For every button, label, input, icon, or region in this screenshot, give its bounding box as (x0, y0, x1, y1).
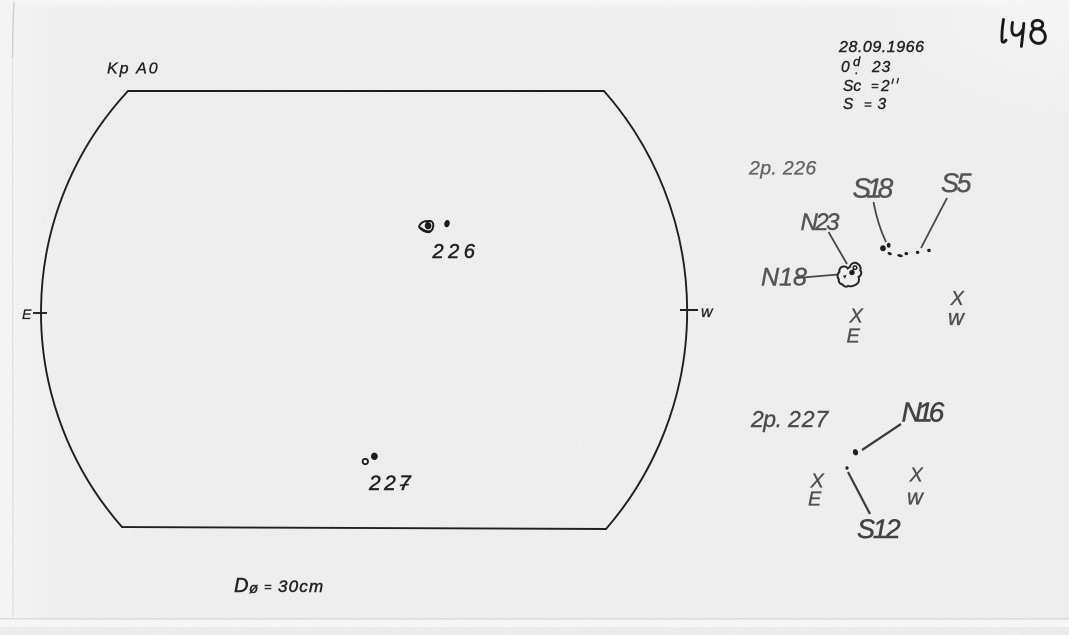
svg-text:w: w (948, 305, 966, 330)
svg-text:S5: S5 (941, 168, 973, 198)
svg-text:=: = (871, 78, 879, 93)
svg-text:E: E (808, 489, 822, 511)
svg-text:X: X (849, 306, 864, 328)
svg-text:w: w (907, 485, 925, 510)
svg-text:23: 23 (871, 59, 891, 76)
svg-text:30cm: 30cm (278, 577, 324, 596)
svg-text:S: S (843, 96, 854, 113)
svg-text:S18: S18 (853, 173, 894, 204)
svg-text:3: 3 (878, 96, 887, 113)
svg-text:.: . (855, 62, 859, 77)
svg-text:Kp A0: Kp A0 (107, 61, 160, 78)
svg-text:N23: N23 (801, 209, 841, 236)
svg-text:E: E (22, 306, 32, 322)
svg-text:2: 2 (880, 78, 890, 95)
svg-text:227: 227 (368, 472, 414, 495)
svg-text:2p. 226: 2p. 226 (748, 158, 817, 180)
svg-text:S12: S12 (857, 514, 901, 544)
svg-text:=: = (864, 97, 872, 112)
svg-text:D: D (234, 575, 249, 597)
svg-text:w: w (701, 304, 714, 321)
svg-text:=: = (264, 579, 272, 594)
svg-text:E: E (847, 326, 861, 348)
svg-text:N16: N16 (902, 397, 945, 428)
svg-text:28.09.1966: 28.09.1966 (838, 39, 925, 56)
svg-text:226: 226 (432, 241, 480, 263)
svg-text:Sc: Sc (843, 78, 861, 95)
svg-text:0: 0 (841, 59, 850, 76)
svg-text:2p.: 2p. (750, 406, 781, 432)
svg-text:ø: ø (249, 580, 258, 597)
svg-text:227: 227 (787, 406, 829, 432)
svg-text:X: X (909, 465, 924, 487)
